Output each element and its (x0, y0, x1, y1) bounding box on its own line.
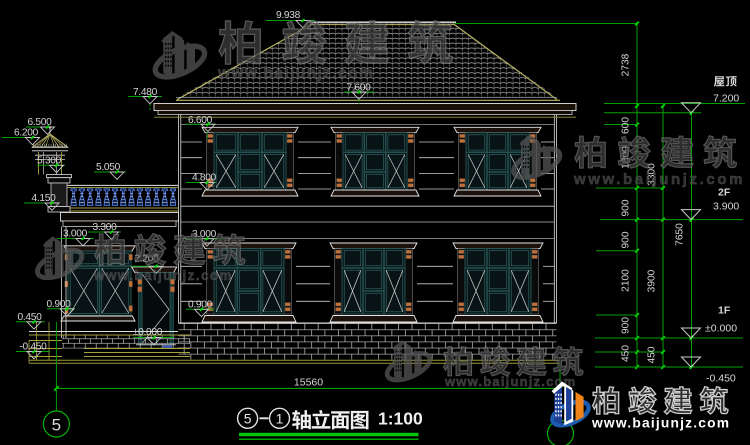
svg-text:15560: 15560 (294, 376, 323, 388)
svg-text:900: 900 (621, 317, 632, 334)
svg-text:7.480: 7.480 (133, 87, 158, 98)
svg-text:3.900: 3.900 (713, 201, 739, 213)
svg-text:±0.000: ±0.000 (133, 327, 163, 338)
svg-text:www.baijunjz.com: www.baijunjz.com (573, 171, 745, 188)
svg-text:1: 1 (276, 410, 284, 426)
svg-text:900: 900 (621, 199, 632, 216)
svg-text:www.baijunjz.com: www.baijunjz.com (591, 416, 730, 431)
svg-text:2F: 2F (718, 187, 731, 199)
svg-text:5: 5 (52, 416, 61, 435)
svg-text:3.300: 3.300 (93, 222, 118, 233)
svg-text:1F: 1F (718, 305, 731, 317)
svg-text:0.450: 0.450 (18, 312, 43, 323)
svg-text:www.baijunjz.com: www.baijunjz.com (93, 268, 233, 283)
svg-text:450: 450 (621, 345, 632, 362)
svg-text:2100: 2100 (621, 269, 632, 292)
svg-text:900: 900 (621, 231, 632, 248)
svg-text:±0.000: ±0.000 (705, 323, 737, 335)
svg-text:0.900: 0.900 (188, 300, 213, 311)
svg-text:7650: 7650 (675, 223, 686, 246)
svg-text:www.baijunjz.com: www.baijunjz.com (217, 65, 374, 82)
svg-text:600: 600 (621, 117, 632, 134)
svg-text:9.938: 9.938 (276, 10, 301, 21)
svg-text:2738: 2738 (621, 53, 632, 76)
svg-text:5: 5 (244, 410, 252, 426)
svg-text:3900: 3900 (647, 269, 658, 292)
svg-text:7.200: 7.200 (713, 93, 739, 105)
svg-text:4.800: 4.800 (192, 173, 217, 184)
svg-text:-0.450: -0.450 (706, 373, 736, 385)
svg-text:6.200: 6.200 (14, 128, 39, 139)
svg-text:1:100: 1:100 (378, 409, 423, 429)
svg-text:450: 450 (647, 346, 658, 363)
